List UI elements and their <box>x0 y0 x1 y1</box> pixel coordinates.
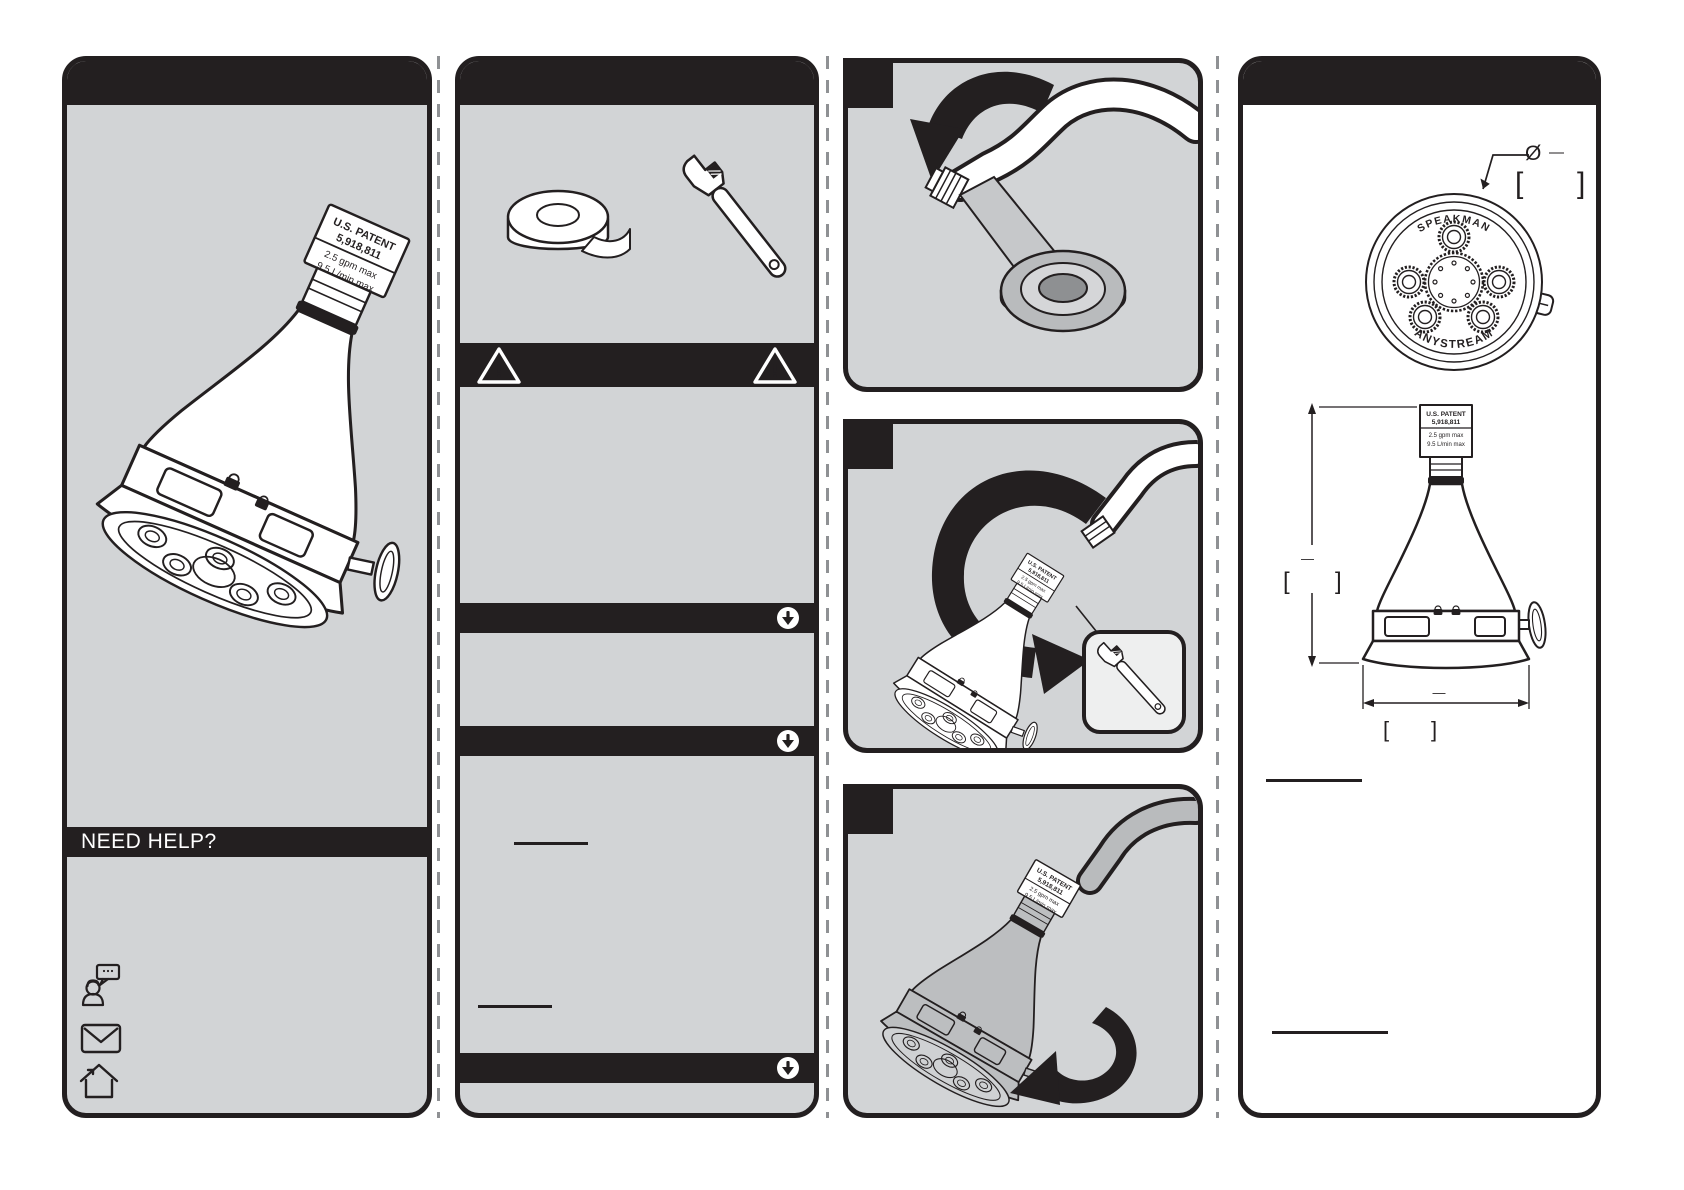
instruction-sheet: U.S. PATENT 5,918,811 2.5 gpm max 9.5 L/… <box>0 0 1684 1190</box>
showerhead-illustration <box>67 131 427 771</box>
blank-line <box>1272 1031 1388 1034</box>
teflon-tape-icon <box>960 177 1125 331</box>
email-icon <box>80 1023 122 1055</box>
step-number-badge <box>843 419 893 469</box>
need-help-label: NEED HELP? <box>81 830 217 854</box>
adjustable-wrench-icon <box>672 149 798 325</box>
step-1-art <box>848 63 1198 387</box>
panel-specs-header <box>1243 61 1596 105</box>
step-1-illustration <box>848 63 1198 387</box>
step-1-box <box>843 58 1203 392</box>
step-number-badge <box>843 58 893 108</box>
dimension-bracket-close: ] <box>1431 717 1437 742</box>
flow-label-line1: 2.5 gpm max <box>1429 433 1464 439</box>
down-arrow-circle-icon <box>776 1056 800 1080</box>
dimension-dash: — <box>1433 685 1446 700</box>
patent-label-line1: U.S. PATENT <box>1426 411 1466 418</box>
warning-bar: ! ! <box>460 343 814 387</box>
panel-product-header <box>67 61 427 105</box>
width-dimension: — [ ] <box>1363 665 1529 742</box>
warning-exclamation: ! <box>772 361 778 382</box>
side-view-drawing: U.S. PATENT 5,918,811 2.5 gpm max 9.5 L/… <box>1279 397 1579 742</box>
down-arrow-circle-icon <box>776 729 800 753</box>
patent-label-line2: 5,918,811 <box>1432 419 1461 426</box>
chat-support-icon <box>79 961 125 1013</box>
dimension-bracket-close: ] <box>1335 568 1342 595</box>
adjustable-wrench-icon <box>1086 634 1182 730</box>
warning-triangle-icon: ! <box>476 346 522 386</box>
dimension-bracket-close: ] <box>1577 167 1585 200</box>
section-bar <box>460 603 814 633</box>
face-view-drawing: SPEAKMAN ANYSTREAM <box>1243 105 1596 425</box>
dimension-dash: — <box>1301 551 1314 566</box>
down-arrow-circle-icon <box>776 606 800 630</box>
step-3-illustration <box>848 789 1198 1113</box>
warning-exclamation: ! <box>496 361 502 382</box>
blank-line <box>514 842 588 845</box>
teflon-tape-icon <box>498 177 640 283</box>
step-3-art <box>848 789 1198 1113</box>
dimension-dash: — <box>1549 144 1564 161</box>
panel-specs: SPEAKMAN ANYSTREAM <box>1238 56 1601 1118</box>
panel-product: NEED HELP? <box>62 56 432 1118</box>
panel-tools-header <box>460 61 814 105</box>
dimension-bracket-open: [ <box>1515 167 1524 200</box>
need-help-bar: NEED HELP? <box>67 827 427 857</box>
section-bar <box>460 1053 814 1083</box>
warning-triangle-icon: ! <box>752 346 798 386</box>
blank-line <box>1266 779 1362 782</box>
column-separator <box>1216 56 1219 1118</box>
column-separator <box>437 56 440 1118</box>
dimension-bracket-open: [ <box>1283 568 1290 595</box>
dimension-bracket-open: [ <box>1383 717 1389 742</box>
blank-line <box>478 1005 552 1008</box>
wrench-inset <box>1082 630 1186 734</box>
section-bar <box>460 726 814 756</box>
panel-tools: ! ! <box>455 56 819 1118</box>
column-separator <box>826 56 829 1118</box>
flow-label-line2: 9.5 L/min max <box>1427 442 1465 448</box>
shower-arm <box>1090 811 1196 881</box>
step-2-box <box>843 419 1203 753</box>
diameter-dimension: Ø — [ ] <box>1479 142 1585 200</box>
step-3-box <box>843 784 1203 1118</box>
step-number-badge <box>843 784 893 834</box>
home-icon <box>78 1061 120 1101</box>
diameter-symbol: Ø <box>1525 142 1541 165</box>
